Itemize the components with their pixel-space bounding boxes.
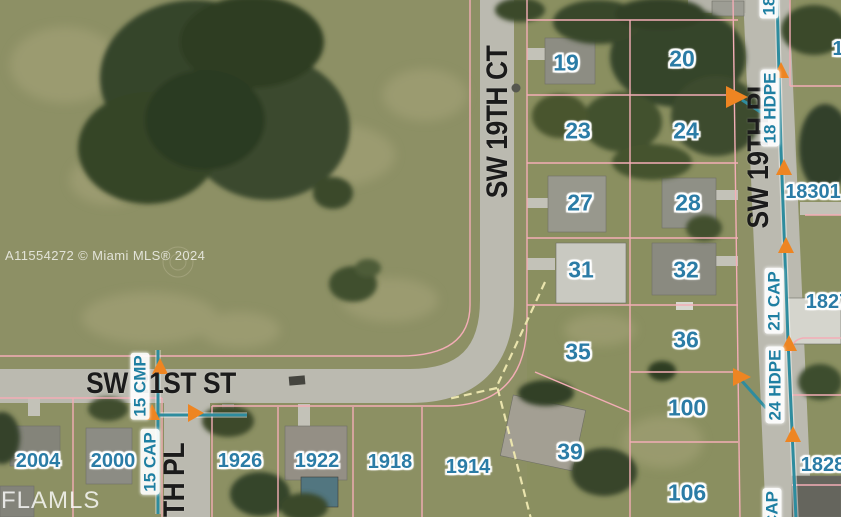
address-2000: 2000 (91, 451, 136, 471)
lot-number-31: 31 (568, 259, 594, 282)
lot-number-24: 24 (673, 120, 699, 143)
street-name-sw-19th-ct: SW 19TH CT (483, 46, 513, 199)
utility-label-18-partial: 18 (760, 0, 779, 18)
lot-number-20: 20 (669, 48, 695, 71)
utility-label-15-cap: 15 CAP (141, 429, 160, 495)
address-1922: 1922 (295, 451, 340, 471)
address-partial-right-edge: 1 (832, 39, 841, 59)
utility-label-21-cap: 21 CAP (765, 268, 784, 334)
lot-number-106: 106 (668, 482, 706, 505)
address-18301: 18301 (785, 182, 841, 202)
utility-label-cap-partial: CAP (763, 488, 782, 517)
utility-label-15-cmp: 15 CMP (131, 352, 150, 419)
lot-number-28: 28 (675, 192, 701, 215)
lot-number-19: 19 (553, 52, 579, 75)
watermark-listing-id: A11554272 © Miami MLS® 2024 (5, 248, 205, 263)
address-1918: 1918 (368, 452, 413, 472)
address-1914: 1914 (446, 457, 491, 477)
lot-number-39: 39 (557, 441, 583, 464)
car (676, 302, 693, 310)
car (289, 375, 306, 385)
address-1828: 1828 (801, 455, 841, 475)
lot-number-23: 23 (565, 120, 591, 143)
address-1827: 1827 (806, 292, 841, 312)
street-name-sw-20th-pl-partial: TH PL (160, 443, 190, 517)
lot-number-36: 36 (673, 329, 699, 352)
watermark-flamls: FLAMLS (1, 487, 100, 515)
address-2004: 2004 (16, 451, 61, 471)
utility-label-18-hdpe: 18 HDPE (761, 70, 780, 147)
lot-number-32: 32 (673, 259, 699, 282)
utility-label-24-hdpe: 24 HDPE (766, 347, 785, 424)
lot-number-100: 100 (668, 397, 706, 420)
address-1926: 1926 (218, 451, 263, 471)
lot-number-27: 27 (567, 192, 593, 215)
street-name-sw-21st-st: SW 21ST ST (86, 369, 236, 399)
lot-number-35: 35 (565, 341, 591, 364)
aerial-parcel-map: SW 19TH CT SW 19TH PL SW 21ST ST TH PL 1… (0, 0, 841, 517)
